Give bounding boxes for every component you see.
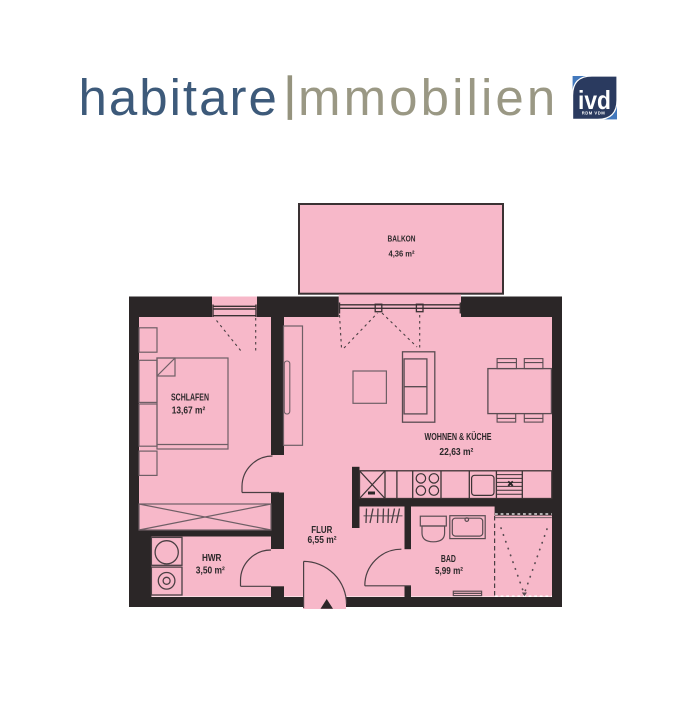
svg-text:habitare: habitare [79, 69, 279, 126]
svg-text:13,67 m²: 13,67 m² [172, 405, 206, 416]
svg-text:BALKON: BALKON [388, 234, 416, 243]
svg-text:22,63 m²: 22,63 m² [439, 447, 474, 458]
svg-text:3,50 m²: 3,50 m² [196, 566, 226, 577]
svg-text:WOHNEN & KÜCHE: WOHNEN & KÜCHE [425, 430, 492, 443]
svg-text:4,36 m²: 4,36 m² [389, 248, 415, 258]
svg-text:BAD: BAD [441, 553, 456, 565]
svg-text:mmobilien: mmobilien [298, 69, 558, 126]
svg-text:RDM VDM: RDM VDM [582, 111, 606, 116]
svg-text:SCHLAFEN: SCHLAFEN [171, 392, 209, 404]
svg-text:6,55 m²: 6,55 m² [308, 535, 338, 546]
svg-text:HWR: HWR [202, 553, 222, 564]
svg-text:5,99 m²: 5,99 m² [435, 566, 464, 577]
